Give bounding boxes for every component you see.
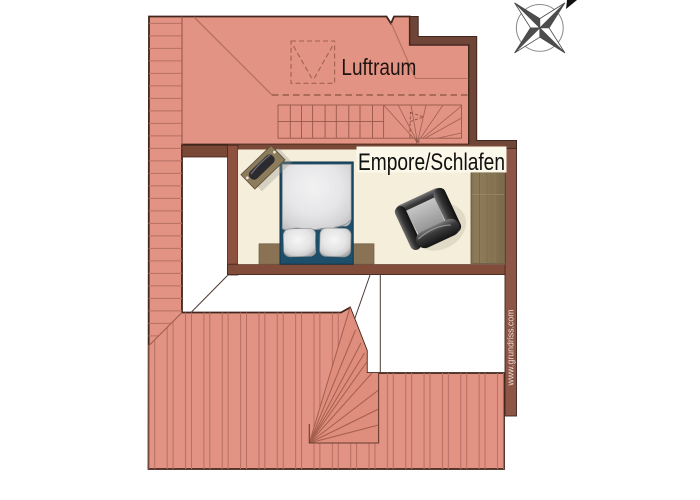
svg-text:Empore/Schlafen: Empore/Schlafen xyxy=(358,149,505,176)
svg-text:www.grundriss.com: www.grundriss.com xyxy=(506,310,516,387)
svg-text:Luftraum: Luftraum xyxy=(341,54,416,80)
